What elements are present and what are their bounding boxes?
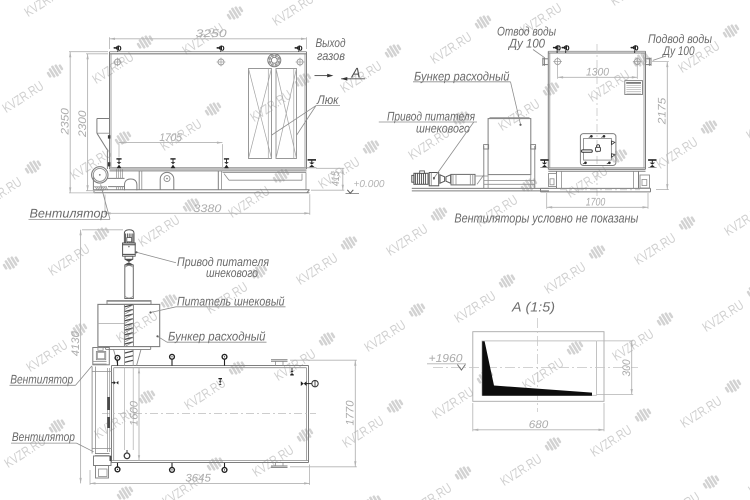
svg-text:4130: 4130 [70, 330, 82, 356]
svg-text:А (1:5): А (1:5) [511, 300, 555, 315]
svg-text:1600: 1600 [128, 400, 140, 426]
svg-text:Выход: Выход [316, 36, 346, 50]
svg-text:Ду 100: Ду 100 [507, 37, 545, 51]
svg-text:680: 680 [529, 419, 549, 431]
svg-text:1700: 1700 [586, 196, 606, 208]
svg-text:Питатель шнековый: Питатель шнековый [177, 294, 285, 308]
svg-text:300: 300 [621, 359, 633, 377]
svg-text:1770: 1770 [345, 400, 357, 426]
svg-text:2300: 2300 [77, 110, 89, 139]
svg-text:+1960: +1960 [429, 353, 464, 365]
svg-text:А: А [351, 65, 361, 81]
svg-text:3250: 3250 [196, 28, 228, 40]
svg-text:Вентиляторы условно не показан: Вентиляторы условно не показаны [454, 211, 638, 226]
svg-text:+0.000: +0.000 [354, 179, 385, 190]
svg-text:Вентилятор: Вентилятор [30, 207, 108, 221]
svg-text:415: 415 [330, 170, 342, 186]
svg-text:2350: 2350 [60, 107, 72, 136]
svg-text:газов: газов [317, 49, 345, 63]
svg-text:Люк: Люк [316, 93, 339, 107]
svg-text:шнекового: шнекового [206, 266, 258, 280]
svg-text:шнекового: шнекового [416, 122, 470, 136]
svg-text:Бункер расходный: Бункер расходный [168, 329, 266, 343]
svg-text:3380: 3380 [193, 203, 222, 215]
svg-text:Вентилятор: Вентилятор [12, 430, 75, 444]
svg-text:Ду 100: Ду 100 [661, 44, 694, 58]
svg-text:Вентилятор: Вентилятор [10, 372, 73, 386]
svg-text:1705: 1705 [159, 132, 182, 144]
svg-text:3645: 3645 [185, 473, 211, 485]
svg-text:2175: 2175 [657, 97, 669, 126]
svg-text:1300: 1300 [586, 67, 610, 79]
